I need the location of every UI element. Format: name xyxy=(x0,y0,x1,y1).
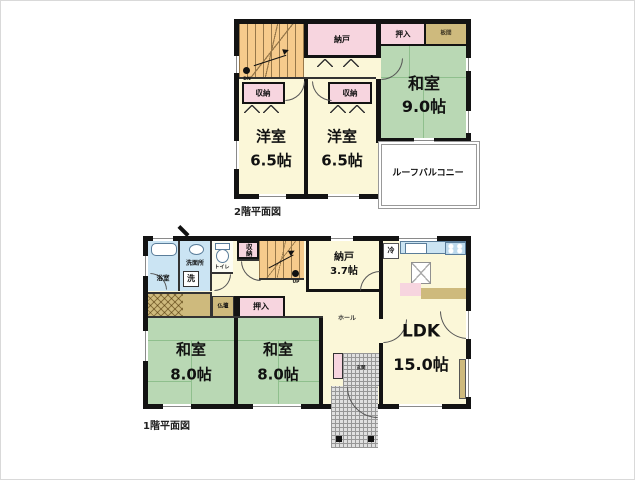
window xyxy=(399,236,437,241)
room-area-washitsu-2f: 9.0帖 xyxy=(402,99,446,115)
wall xyxy=(379,343,383,404)
window xyxy=(253,404,301,409)
room-label-genkan: 玄関 xyxy=(357,367,366,372)
floorplan-canvas: DN 納戸 押入 板間 和室 9.0帖 収納 洋室 6.5帖 xyxy=(0,0,635,480)
counter-tan xyxy=(421,288,466,299)
folding-door-mark xyxy=(343,59,359,67)
window xyxy=(466,58,471,71)
room-label-bath: 浴室 xyxy=(157,275,170,282)
room-label-itanoma-2f: 板間 xyxy=(440,31,451,37)
floor-hatch-box xyxy=(411,262,431,284)
window xyxy=(466,311,471,339)
room-label-roof-balcony: ルーフバルコニー xyxy=(392,170,463,179)
room-label-washitsu-right: 和室 xyxy=(263,343,293,358)
window xyxy=(143,256,148,276)
shoe-cabinet xyxy=(333,353,343,379)
room-label-ldk: LDK xyxy=(402,324,440,341)
sink-icon xyxy=(189,244,204,255)
room-label-oshiire-2f: 押入 xyxy=(396,30,411,38)
room-label-fridge: 冷 xyxy=(388,248,395,255)
window xyxy=(234,56,239,73)
room-area-youshitsu-right: 6.5帖 xyxy=(321,154,363,169)
room-label-youshitsu-right: 洋室 xyxy=(327,130,357,145)
room-area-ldk: 15.0帖 xyxy=(393,357,448,373)
window xyxy=(143,331,148,361)
door-arc xyxy=(214,274,231,291)
folding-door-mark xyxy=(263,105,279,113)
window xyxy=(234,141,239,169)
room-label-shuno-left: 収納 xyxy=(256,89,271,97)
caption-second-floor: 2階平面図 xyxy=(234,203,281,218)
folding-door-mark xyxy=(244,105,260,113)
wood-deck-area xyxy=(148,293,183,318)
caption-first-floor: 1階平面図 xyxy=(143,417,190,432)
tatami-line xyxy=(409,46,410,77)
room-label-washitsu-2f: 和室 xyxy=(408,76,440,92)
room-label-nando-2f: 納戸 xyxy=(334,36,350,44)
stair-up-label: UP xyxy=(293,281,300,286)
room-label-laundry: 洗 xyxy=(187,275,195,283)
door-arc xyxy=(440,311,468,339)
toilet-bowl-icon xyxy=(216,249,229,263)
room-label-youshitsu-left: 洋室 xyxy=(256,130,286,145)
porch-post xyxy=(368,436,374,442)
kitchen-sink-icon xyxy=(405,243,427,254)
room-label-hall: ホール xyxy=(338,316,356,322)
bathtub-icon xyxy=(151,243,177,256)
door-arc xyxy=(241,261,261,281)
counter-pink xyxy=(400,283,421,296)
room-area-youshitsu-left: 6.5帖 xyxy=(250,154,292,169)
window xyxy=(399,404,442,409)
stair-dn-label: DN xyxy=(243,78,251,83)
room-label-toilet: トイレ xyxy=(214,266,229,271)
room-label-oshiire-1f: 押入 xyxy=(253,303,269,311)
stove-icon xyxy=(445,242,466,255)
wood-corridor-area xyxy=(183,293,210,318)
wall xyxy=(148,292,212,294)
wall xyxy=(319,318,323,404)
door-arc xyxy=(360,271,380,291)
room-label-shuno-right: 収納 xyxy=(343,89,358,97)
window xyxy=(466,111,471,133)
stair-dn-dot xyxy=(243,67,250,74)
folding-door-mark xyxy=(317,59,333,67)
room-area-washitsu-left: 8.0帖 xyxy=(170,368,212,383)
room-label-washroom: 洗面所 xyxy=(186,261,204,267)
window xyxy=(259,194,286,199)
folding-door-mark xyxy=(330,105,346,113)
room-label-shuno-1f: 収納 xyxy=(245,244,252,257)
first-floor-plan: 浴室 洗面所 洗 トイレ 収納 UP 納戸 3.7帖 ホ xyxy=(143,236,471,409)
porch-post xyxy=(336,436,342,442)
window xyxy=(414,138,434,143)
room-label-washitsu-left: 和室 xyxy=(176,343,206,358)
wall xyxy=(306,241,309,289)
stair-up-dot xyxy=(292,270,299,277)
folding-door-mark xyxy=(349,105,365,113)
room-label-butsudan: 仏壇 xyxy=(217,304,228,310)
window xyxy=(328,194,359,199)
room-area-washitsu-right: 8.0帖 xyxy=(257,368,299,383)
room-label-nando-1f: 納戸 xyxy=(334,253,354,263)
bay-counter xyxy=(459,359,466,399)
window xyxy=(466,359,471,397)
room-area-nando-1f: 3.7帖 xyxy=(330,267,358,277)
second-floor-plan: DN 納戸 押入 板間 和室 9.0帖 収納 洋室 6.5帖 xyxy=(234,19,471,199)
window xyxy=(153,236,173,241)
window xyxy=(163,404,191,409)
window xyxy=(331,236,353,241)
